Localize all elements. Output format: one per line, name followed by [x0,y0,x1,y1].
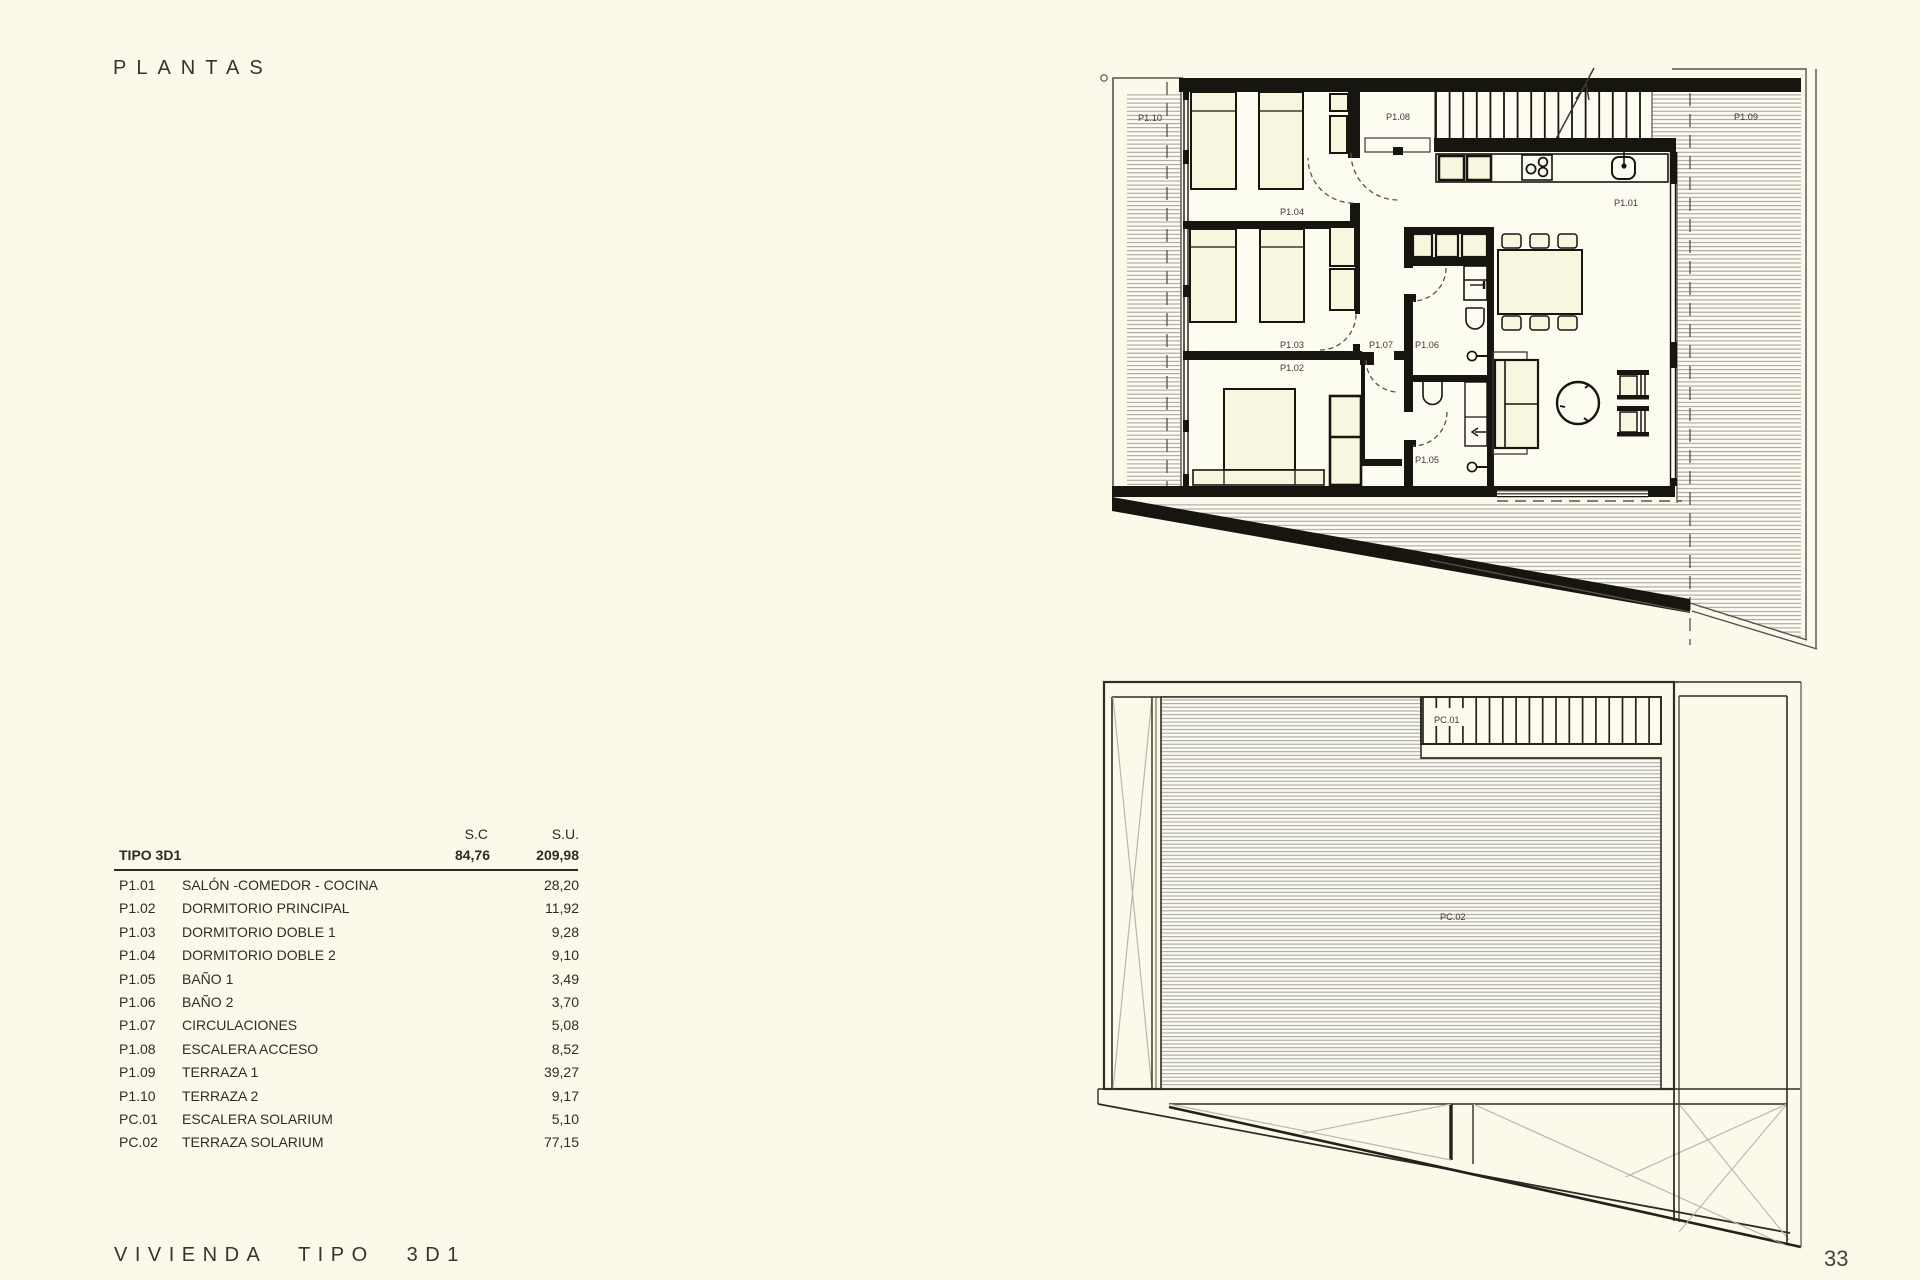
svg-text:P1.05: P1.05 [1415,455,1439,465]
svg-text:PC.02: PC.02 [1440,912,1466,922]
svg-text:P1.03: P1.03 [1280,340,1304,350]
svg-text:P1.07: P1.07 [1369,340,1393,350]
svg-text:P1.08: P1.08 [1386,112,1410,122]
svg-text:P1.06: P1.06 [1415,340,1439,350]
svg-text:P1.02: P1.02 [1280,363,1304,373]
svg-text:PC.01: PC.01 [1434,715,1460,725]
svg-text:P1.04: P1.04 [1280,207,1304,217]
svg-text:P1.10: P1.10 [1138,113,1162,123]
svg-text:P1.09: P1.09 [1734,112,1758,122]
svg-text:P1.01: P1.01 [1614,198,1638,208]
